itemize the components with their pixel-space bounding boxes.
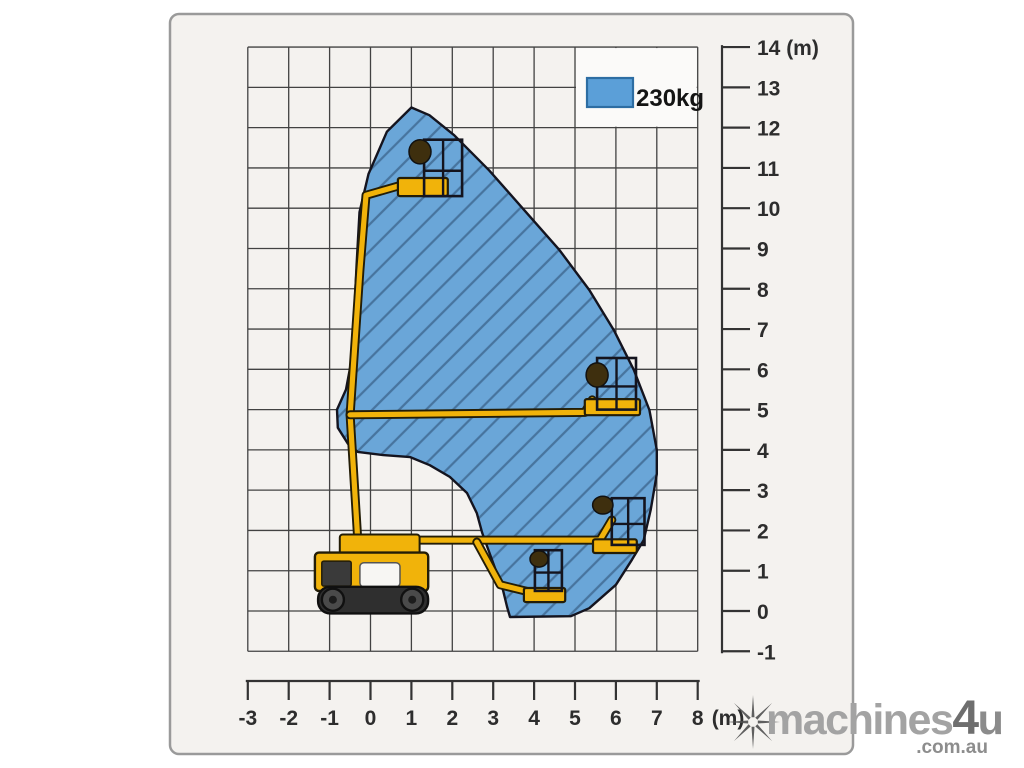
- y-axis-tick-label: 12: [757, 118, 780, 141]
- legend-swatch: [587, 78, 633, 107]
- y-axis-tick-label: 8: [757, 279, 769, 302]
- y-axis-tick-label: 11: [757, 158, 780, 181]
- y-axis-tick-label: 1: [757, 561, 769, 584]
- y-axis-tick-label: 3: [757, 480, 769, 503]
- y-axis-tick-label: 2: [757, 520, 769, 543]
- screenshot-root: 14 (m)131211109876543210-1-3-2-101234567…: [0, 0, 1024, 768]
- x-axis-unit-label: (m): [712, 707, 745, 730]
- y-axis-tick-label: 14 (m): [757, 37, 819, 60]
- x-axis-tick-label: -3: [238, 707, 257, 730]
- y-axis-tick-label: 4: [757, 440, 769, 463]
- body-panel: [360, 563, 400, 587]
- cab-window: [322, 561, 351, 586]
- x-axis-tick-label: 6: [610, 707, 622, 730]
- x-axis-tick-label: 1: [406, 707, 418, 730]
- platform-base: [585, 399, 640, 415]
- y-axis-tick-label: 0: [757, 601, 769, 624]
- watermark-suffix: .com.au: [916, 737, 988, 758]
- y-axis-tick-label: 5: [757, 400, 769, 423]
- operator-head: [593, 496, 613, 514]
- legend-label: 230kg: [636, 85, 704, 112]
- x-axis-tick-label: 2: [446, 707, 458, 730]
- y-axis-tick-label: 9: [757, 238, 769, 261]
- track-wheel-hub: [329, 596, 337, 604]
- operator-head: [409, 140, 431, 164]
- x-axis-tick-label: -2: [279, 707, 298, 730]
- x-axis-tick-label: 0: [365, 707, 377, 730]
- x-axis-tick-label: 3: [487, 707, 499, 730]
- y-axis-tick-label: 13: [757, 77, 780, 100]
- track-wheel-hub: [408, 596, 416, 604]
- x-axis-tick-label: 5: [569, 707, 581, 730]
- reach-diagram: 14 (m)131211109876543210-1-3-2-101234567…: [0, 0, 1024, 768]
- y-axis-tick-label: 10: [757, 198, 780, 221]
- x-axis-tick-label: -1: [320, 707, 339, 730]
- operator-head: [530, 551, 548, 567]
- y-axis-tick-label: -1: [757, 641, 776, 664]
- y-axis-tick-label: 7: [757, 319, 769, 342]
- x-axis-tick-label: 8: [692, 707, 704, 730]
- operator-head: [586, 363, 608, 387]
- y-axis-tick-label: 6: [757, 359, 769, 382]
- x-axis-tick-label: 7: [651, 707, 663, 730]
- x-axis-tick-label: 4: [528, 707, 540, 730]
